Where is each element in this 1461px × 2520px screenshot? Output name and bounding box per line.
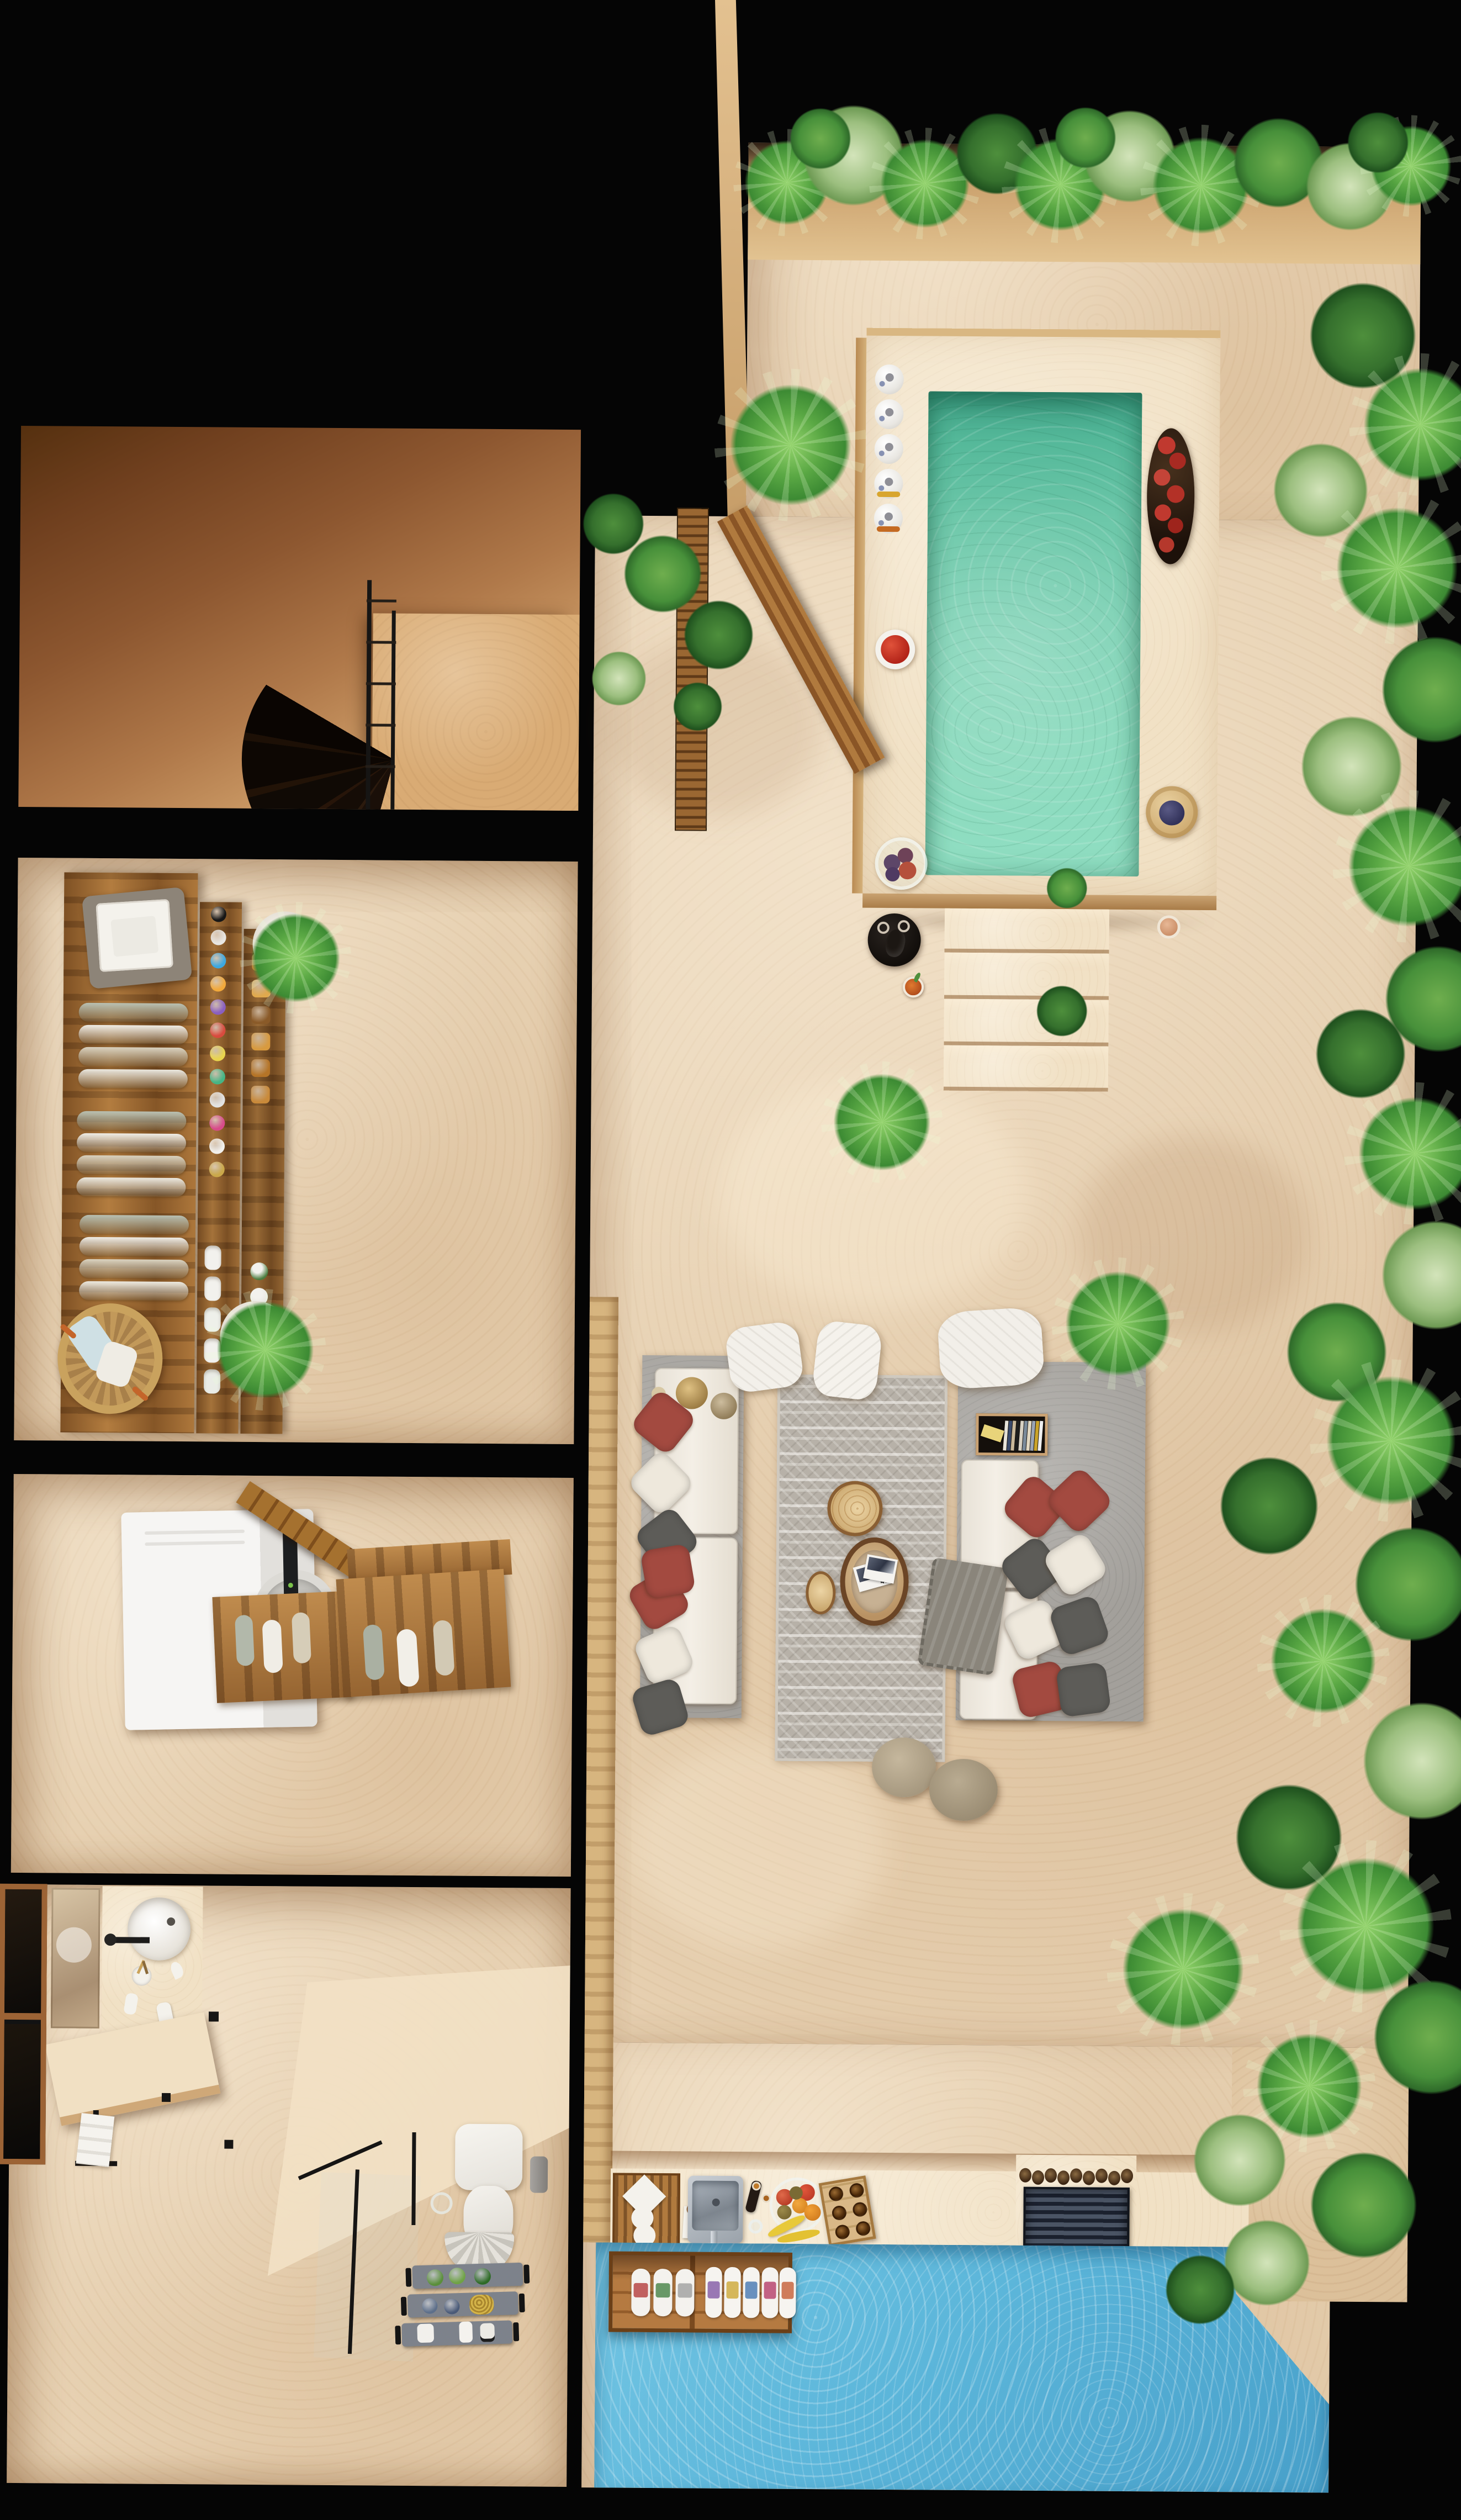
minibar-bottle [209,1161,225,1177]
rack-bracket [519,2294,525,2312]
throw-blanket [918,1557,1009,1676]
glass-clamp [162,2093,171,2102]
pouf [811,1319,883,1401]
plant-cluster [707,362,874,529]
bottle-cap [885,478,893,486]
railing-rung [366,682,396,685]
magazine [863,1554,898,1583]
snack-jar [251,1059,270,1077]
window-pane [4,1889,42,2014]
minibar-bottle [210,976,226,991]
cocktail [903,976,924,997]
glass-clamp [209,2011,219,2021]
washer-lid-groove [145,1541,245,1546]
ottoman [872,1737,936,1798]
rolled-towel [362,1624,384,1681]
towel-rolls [78,1003,192,1093]
fig [897,848,913,863]
glass-clamp [224,2140,233,2149]
rolled-towel [80,1237,189,1256]
towel-bench [212,1591,351,1703]
ceramic-bottle [874,504,903,533]
bottle-cap [885,373,893,382]
bottle-cap [885,513,893,521]
drink-cup [1157,915,1181,938]
firewood-log [1045,2168,1057,2183]
plant-cluster [1039,860,1095,916]
blueberry-board [1146,786,1198,838]
rack-bracket [513,2322,519,2341]
strawberries [881,635,909,664]
bottle-cap [885,443,893,451]
minibar-bottles [205,906,232,1193]
bottle-cap [885,408,893,416]
vessel-sink [128,1897,191,1961]
rolled-towel [79,1259,188,1279]
plant-cluster [1100,1886,1267,2053]
drink-label [634,2283,648,2297]
minibar-bottle [209,1138,225,1154]
snack-jar [251,1086,270,1103]
fig [886,867,900,881]
water-bottle [204,1245,221,1270]
amenity-rack [404,2263,529,2349]
plant-cluster [583,642,655,715]
drink-label [764,2281,776,2299]
pump-nozzle [480,2323,495,2342]
bottle-oil [877,526,900,532]
rolled-towel [78,1069,188,1089]
room-laundry [11,1474,574,1877]
pomegranate [1153,469,1170,485]
plant-cluster [235,897,357,1019]
plunge-pool [925,391,1142,876]
bottle-pattern [880,416,885,421]
railing-rung [367,599,396,602]
floor-plan-stage: 49 [0,0,1461,2520]
bottle-oil [877,492,900,497]
drink-caddy [608,2252,792,2333]
drink-bottle [761,2267,779,2318]
drink-can [250,1262,268,1280]
firewood-log [1019,2168,1031,2183]
floor-blotch [631,1739,887,1951]
minibar-bottle [210,1069,225,1084]
room-bathroom [7,1884,571,2487]
step [944,1045,1109,1092]
sofa-pillow [640,1543,696,1599]
sponge [469,2294,494,2315]
orange [804,2204,821,2221]
vanity-mirror [51,1888,100,2028]
pomegranate [1155,504,1171,521]
vanity-counter [45,2012,220,2126]
beer-bottle [851,2201,868,2218]
rolled-towel [77,1155,186,1175]
ceramic-bottle [874,469,903,499]
glass [877,922,890,934]
rolled-towel [76,1177,186,1197]
room-stairwell [18,426,581,811]
towel-tray [82,887,193,989]
bottle-pattern [878,520,884,526]
kiwi [789,2186,802,2200]
beer-bottle [834,2224,851,2241]
plan: 49 [0,0,1461,2520]
step [944,908,1109,954]
folded-towel-top [110,916,159,957]
amenity-pump [459,2321,473,2343]
bottle-pattern [879,485,885,491]
pomegranate [1159,537,1174,552]
washer-lid-groove [145,1530,245,1535]
plant-cluster [1044,96,1127,179]
pouf [936,1307,1045,1391]
railing-rung [366,723,395,726]
plant-cluster [199,1283,332,1417]
rack-bracket [395,2326,401,2344]
pomegranate [1167,485,1184,503]
ottoman [929,1759,998,1821]
toothbrush-cup [131,1966,151,1985]
rolled-towel [78,1047,188,1066]
glass-fruit-bowl [875,837,928,890]
firewood-log [1032,2170,1044,2185]
plant-cluster [1027,976,1097,1045]
plant-cluster [664,673,731,740]
rolled-towel [433,1619,455,1676]
firewood-log [1057,2170,1070,2185]
drink-bottle [631,2269,650,2316]
drink-bottle [705,2267,722,2318]
minibar-bottle [210,1045,225,1061]
snack-jar [251,1033,270,1050]
basket-handle [131,1386,149,1402]
beer-bottle [831,2205,848,2221]
rack-bracket [405,2268,411,2286]
blueberries [1160,801,1184,826]
log-table-small [827,1481,883,1536]
strawberry-plate [875,630,915,670]
drink-bottle [724,2267,741,2318]
pillow-basket [57,1303,163,1414]
drink-bottle [653,2269,673,2316]
firewood-log [1070,2168,1082,2183]
rack-bracket [523,2265,530,2284]
minibar-bottle [209,1092,225,1107]
plant-cluster [1336,101,1420,184]
pomegranate [1158,436,1176,454]
dish-rack [612,2173,680,2247]
yellow-booklet [981,1424,1004,1443]
plant-cluster [1046,1251,1190,1396]
rolled-towel [396,1629,420,1687]
magazine-photo [867,1557,895,1574]
plant-cluster [779,97,862,181]
rolled-towel [79,1281,188,1301]
drink-label [656,2283,670,2297]
rack-bracket [401,2297,407,2316]
rolled-towel [235,1614,255,1666]
tall-glass [748,2219,763,2233]
towel-rolls [79,1215,192,1303]
amenity-bottle [417,2323,434,2343]
glass [897,920,909,932]
beer-bottle [849,2182,865,2199]
beer-bottle [855,2220,871,2237]
firewood-row [1019,2168,1135,2189]
window-pane [3,2024,41,2159]
rolled-towel [262,1619,283,1673]
rolled-towel [77,1111,186,1130]
decanter-tray [867,913,921,967]
bowl [711,1393,737,1419]
firewood-log [1083,2170,1095,2185]
glass-jar [431,2192,453,2214]
drink-label [707,2281,720,2298]
firewood-log [1108,2171,1120,2185]
drink-bottle [779,2268,796,2318]
minibar-bottle [209,1115,225,1130]
firewood-log [1095,2169,1108,2183]
faucet-knob [104,1933,117,1946]
ceramic-bottle-column [874,364,905,539]
drink-label [726,2281,739,2299]
toilet-paper [530,2157,548,2193]
glass-frame [411,2132,416,2225]
log-table-tiny [806,1571,836,1614]
bottle-pattern [880,381,885,387]
window-rail [0,2013,44,2020]
plant-cluster [1178,2099,1301,2222]
minibar-bottle [210,1022,225,1038]
drink-label [745,2281,758,2299]
bath-window [0,1884,47,2165]
beer-bottle [828,2186,844,2202]
towel-bench [336,1569,511,1698]
ceramic-bottle [875,399,903,429]
minibar-bottle [210,953,226,968]
minibar-bottle [211,929,226,945]
rolled-towel [291,1612,311,1663]
hanging-towel [76,2113,114,2167]
plant-cluster [1153,2242,1247,2337]
rolled-towel [77,1133,186,1153]
mirror-reflection [56,1927,91,1963]
minibar-bottle [211,906,226,922]
railing-rung [366,765,395,768]
pomegranate [1169,453,1185,469]
wall-faucet [111,1937,150,1943]
ceramic-bottle [875,434,903,464]
rolled-towel [79,1003,188,1022]
bar-sink [687,2175,743,2243]
bottle-pattern [879,451,885,456]
firewood-log [1121,2169,1133,2183]
towel-rolls [76,1111,189,1199]
log-table-large: 49 [840,1537,909,1626]
plant-cluster [816,1055,949,1189]
magazine-rack [976,1413,1048,1456]
sink-drain [167,1917,175,1926]
pouf [724,1320,804,1394]
plant-cluster [671,588,766,682]
shot-glass [752,2181,761,2190]
sofa-pillow [1056,1662,1111,1718]
rolled-towel [78,1025,188,1044]
drink-label [678,2283,692,2297]
drink-bottle [743,2267,760,2318]
plant-cluster [1203,1439,1336,1573]
railing-rung [366,641,396,643]
drink-bottle [675,2269,695,2316]
rolled-towel [80,1215,189,1234]
washer-panel-light [288,1583,293,1588]
toilet-tank [455,2124,523,2191]
pomegranate [1168,518,1183,533]
kiwi [777,2205,791,2220]
minibar-bottle [210,999,226,1015]
water-bottle [204,1276,221,1301]
pomegranate [898,862,916,879]
ceramic-bottle [875,364,904,394]
drink-label [781,2281,794,2299]
